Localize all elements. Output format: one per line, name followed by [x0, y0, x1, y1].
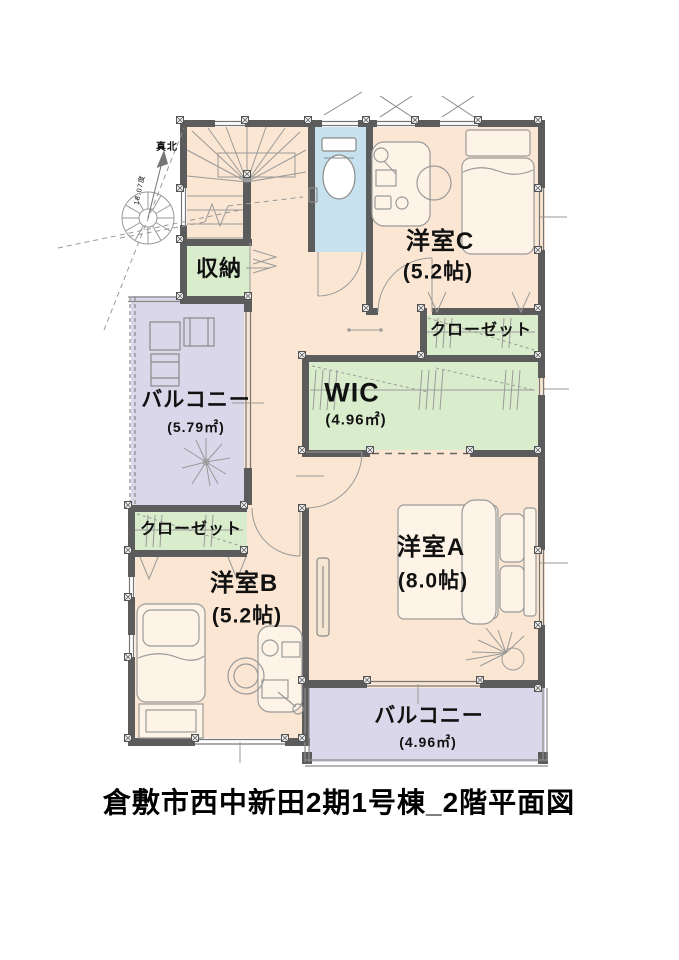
room-label-closet-east: クローゼット [430, 323, 532, 339]
stair-up-path [120, 197, 303, 238]
room-size-bedroom-c: (5.2帖) [403, 262, 473, 283]
room-label-bedroom-c: 洋室C [406, 230, 474, 254]
toilet-icon [309, 138, 356, 202]
room-label-balcony-west: バルコニー [141, 390, 251, 411]
bed-b-icon [137, 604, 205, 738]
window-x-marks [324, 92, 474, 117]
desk-c-icon [372, 142, 451, 226]
room-size-balcony-south: (4.96㎡) [399, 735, 457, 749]
room-label-closet-west: クローゼット [140, 522, 242, 538]
room-label-bedroom-a: 洋室A [397, 536, 465, 560]
room-label-balcony-south: バルコニー [374, 706, 484, 727]
desk-b-icon [228, 626, 303, 714]
compass-north-label: 真北 [156, 143, 178, 153]
room-size-wic: (4.96㎡) [325, 413, 386, 428]
plan-title: 倉敷市西中新田2期1号棟_2階平面図 [103, 781, 575, 821]
room-size-bedroom-b: (5.2帖) [212, 606, 282, 627]
plant-balcony-icon [182, 438, 230, 486]
wic-opening [370, 450, 470, 457]
bed-a-icon [398, 500, 536, 624]
balcony-table-icon [150, 318, 214, 386]
compass-icon [58, 128, 240, 330]
floor-plan: 収納 洋室C (5.2帖) クローゼット WIC (4.96㎡) バルコニー (… [0, 0, 679, 960]
room-size-balcony-west: (5.79㎡) [167, 420, 225, 434]
room-size-bedroom-a: (8.0帖) [398, 571, 468, 592]
room-label-wic: WIC [324, 380, 379, 407]
tv-icon [317, 558, 329, 636]
plant-a-icon [466, 628, 524, 670]
room-label-storage: 収納 [196, 258, 242, 280]
room-label-bedroom-b: 洋室B [210, 572, 278, 596]
